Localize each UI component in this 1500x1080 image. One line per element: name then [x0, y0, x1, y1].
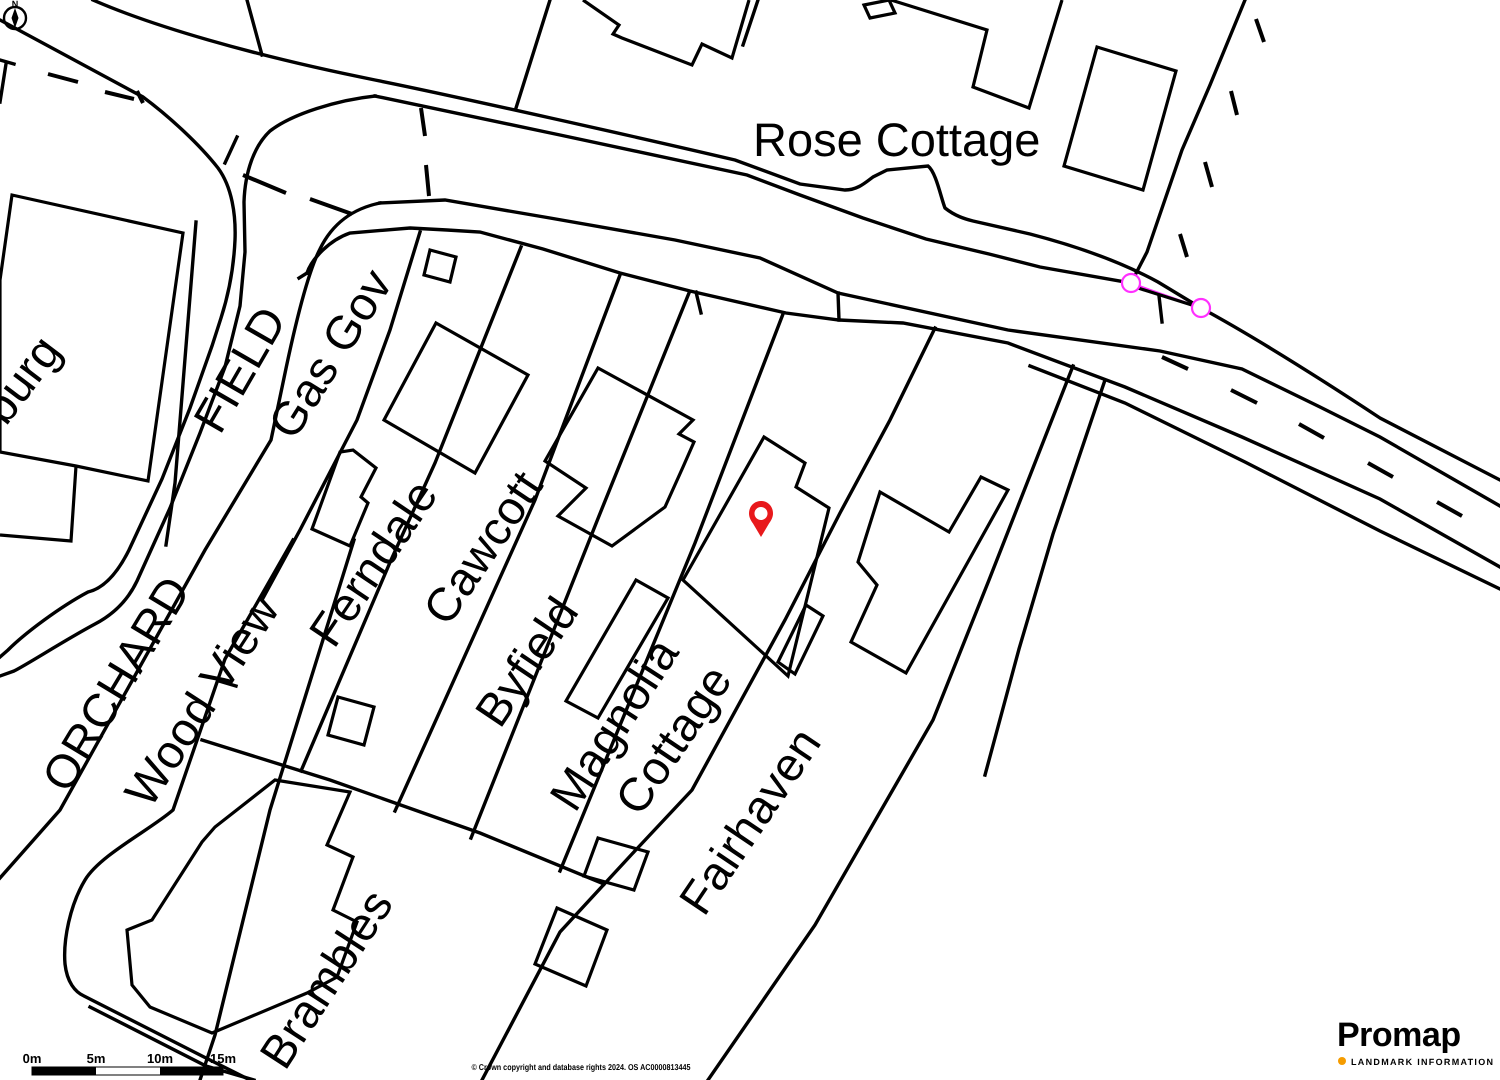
svg-text:0m: 0m — [23, 1051, 42, 1066]
svg-text:10m: 10m — [147, 1051, 173, 1066]
svg-text:15m: 15m — [210, 1051, 236, 1066]
svg-text:LANDMARK INFORMATION: LANDMARK INFORMATION — [1351, 1057, 1494, 1067]
svg-text:N: N — [12, 0, 19, 9]
svg-text:© Crown copyright and database: © Crown copyright and database rights 20… — [472, 1062, 691, 1072]
svg-text:Promap: Promap — [1337, 1016, 1461, 1054]
svg-text:Rose Cottage: Rose Cottage — [753, 113, 1040, 166]
svg-text:5m: 5m — [87, 1051, 106, 1066]
